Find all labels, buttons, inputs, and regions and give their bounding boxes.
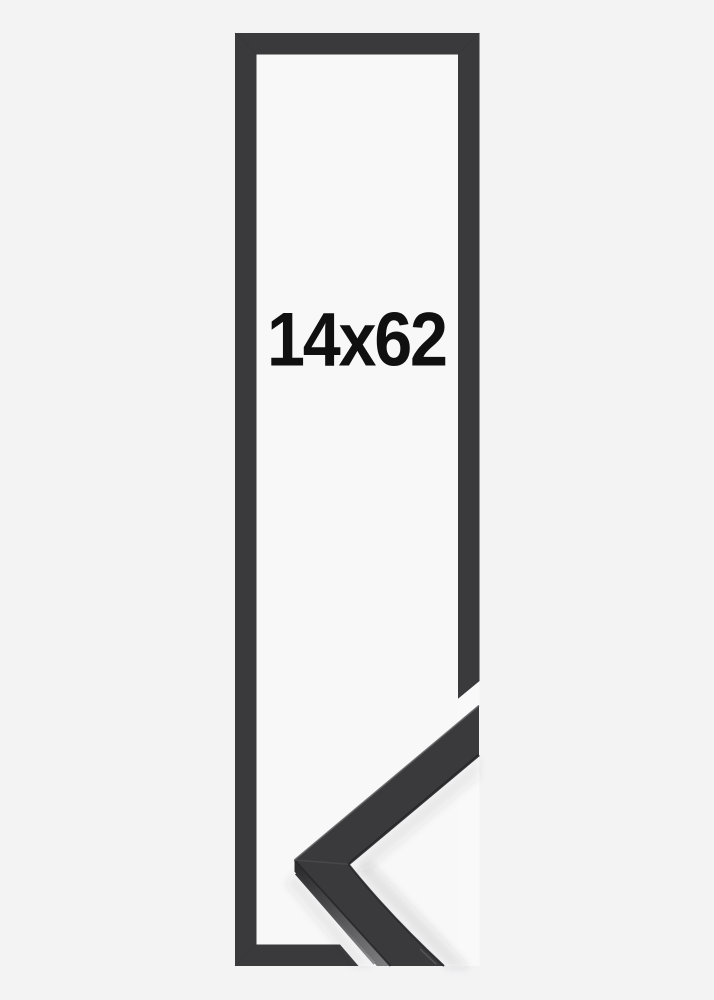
svg-text:14x62: 14x62 xyxy=(267,297,446,382)
